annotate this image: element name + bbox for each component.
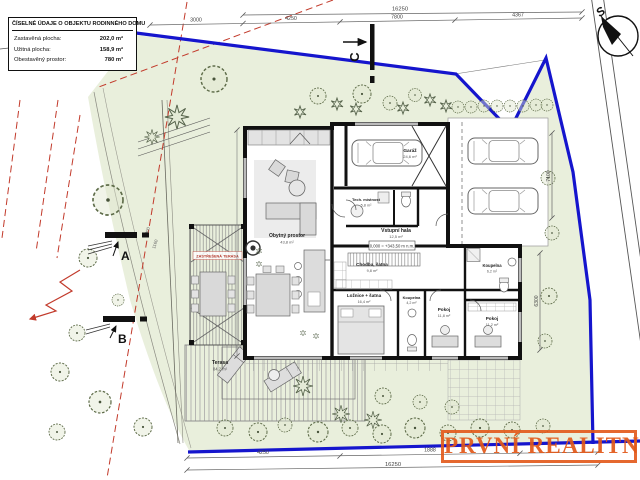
room-area-bath-main: 6,2 m²: [487, 270, 498, 274]
north-arrow: S: [593, 4, 638, 56]
row-label: Obestavěný prostor:: [14, 55, 66, 66]
room-area-bath-small: 4,2 m²: [406, 301, 417, 305]
row-value: 158,9 m²: [100, 45, 131, 56]
room-area-room1: 11,8 m²: [438, 314, 451, 318]
room-label-living: Obytný prostor: [269, 233, 305, 239]
dim-top-seg-2: 7800: [391, 15, 403, 21]
dim-bottom-total: 16250: [385, 462, 401, 468]
room-label-room1: Pokoj: [438, 307, 451, 312]
pergola-table: [200, 272, 226, 316]
room-area-bedroom: 16,4 m²: [358, 300, 372, 304]
watermark-logo: PRVNÍ REALITNÍ: [441, 430, 637, 463]
section-label-c: C: [347, 52, 362, 62]
elevation-label: 0,000 = +343,50 m n.m.: [370, 243, 414, 248]
room-area-terrace: 84,2 m²: [213, 367, 228, 372]
dim-top-seg-0: 3000: [190, 18, 202, 24]
room-label-tech: Tech. místnost: [352, 197, 381, 202]
dim-garden-right: 6300: [534, 295, 540, 306]
room-area-hall: 12,5 m²: [389, 234, 403, 239]
room-area-living: 43,8 m²: [280, 240, 294, 245]
section-label-a: A: [121, 249, 130, 263]
section-label-b: B: [118, 332, 127, 346]
site-plan-canvas: Terasa 84,2 m² ZASTŘEŠENÁ TERASA: [0, 0, 640, 480]
building-data-title: ČÍSELNÉ ÚDAJE O OBJEKTU RODINNÉHO DOMU: [12, 20, 133, 31]
dim-top-seg-3: 4367: [512, 13, 524, 19]
row-value: 780 m³: [105, 55, 131, 66]
room-label-room2: Pokoj: [486, 316, 499, 321]
parked-car-2: [468, 188, 538, 214]
dim-bottom-seg-0: 4250: [257, 450, 269, 456]
parking-area: [448, 118, 548, 246]
room-label-bedroom: Ložnice + šatna: [347, 293, 382, 298]
paving-row: [246, 360, 448, 371]
road-edges: [591, 0, 640, 480]
dim-bottom-seg-1: 1888: [424, 448, 436, 454]
room-label-terrace: Terasa: [212, 360, 228, 366]
row-label: Zastavěná plocha:: [14, 34, 61, 45]
building-data-row: Zastavěná plocha: 202,0 m²: [12, 34, 133, 45]
room-area-corridor: 9,8 m²: [367, 269, 378, 273]
red-zigzag-arrow: [30, 270, 80, 319]
room-area-tech: 5,8 m²: [361, 204, 372, 208]
room-label-bath-main: Koupelna: [482, 263, 502, 268]
dining-table: [256, 274, 290, 316]
paved-patio-grid: [448, 358, 520, 420]
parked-car-1: [468, 138, 538, 164]
building-data-box: ČÍSELNÉ ÚDAJE O OBJEKTU RODINNÉHO DOMU Z…: [8, 17, 137, 71]
dim-parking-depth: 7100: [546, 170, 552, 181]
terrace-table: [269, 370, 280, 381]
pergola-note-label: ZASTŘEŠENÁ TERASA: [196, 253, 239, 258]
dim-top-total: 16250: [392, 7, 408, 13]
row-value: 202,0 m²: [100, 34, 131, 45]
room-area-garage: 24,6 m²: [403, 154, 417, 159]
row-label: Užitná plocha:: [14, 45, 51, 56]
room-label-bath-small: Koupelna: [403, 295, 422, 300]
site-plan-drawing: Terasa 84,2 m² ZASTŘEŠENÁ TERASA: [0, 0, 640, 480]
dim-top-seg-1: 4250: [285, 16, 297, 22]
building-data-row: Obestavěný prostor: 780 m³: [12, 55, 133, 66]
building-data-row: Užitná plocha: 158,9 m²: [12, 45, 133, 56]
pergola: ZASTŘEŠENÁ TERASA: [189, 224, 246, 345]
room-label-corridor: Chodba, šatna: [356, 262, 388, 267]
